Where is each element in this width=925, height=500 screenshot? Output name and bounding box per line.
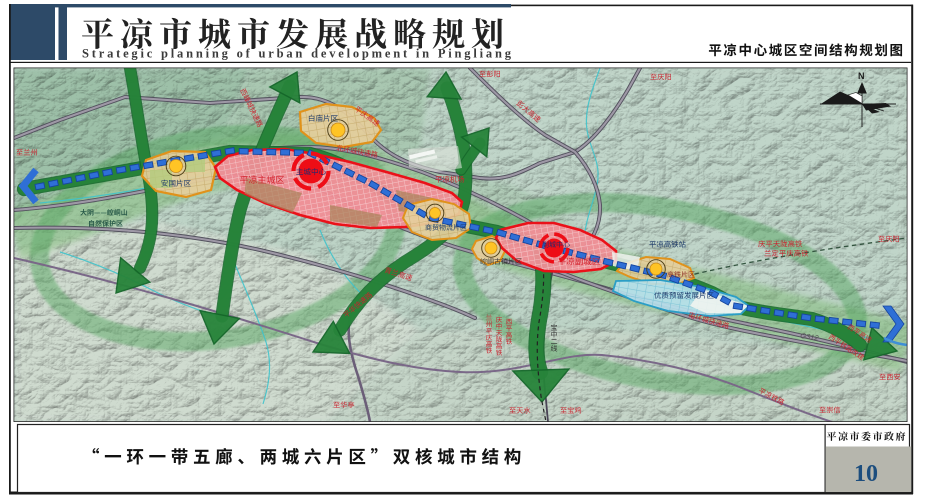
svg-text:10: 10 bbox=[854, 461, 878, 487]
svg-text:Strategic planning of urban de: Strategic planning of urban development … bbox=[82, 47, 514, 61]
svg-text:N: N bbox=[858, 71, 865, 81]
